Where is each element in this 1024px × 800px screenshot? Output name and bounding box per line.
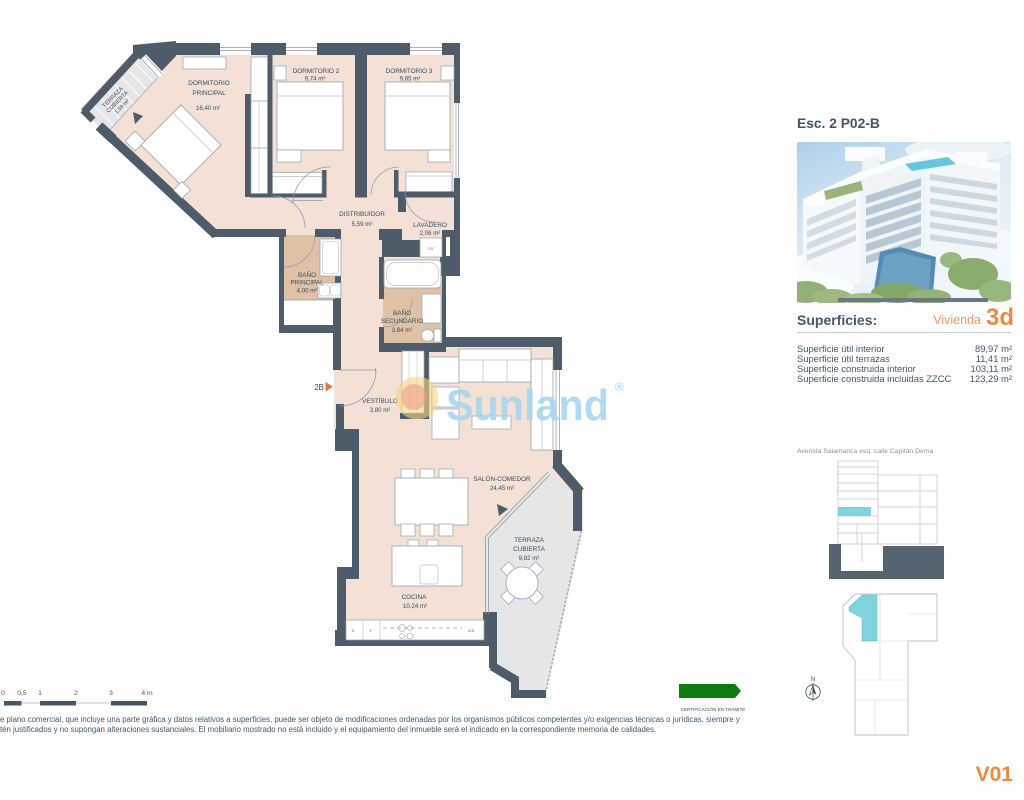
svg-text:LAVADERO: LAVADERO [413,222,447,229]
svg-text:2: 2 [74,690,78,697]
svg-text:9,85 m²: 9,85 m² [400,76,421,83]
svg-text:4,00 m²: 4,00 m² [297,288,318,295]
svg-text:0,5: 0,5 [17,690,27,697]
svg-text:CERTIFICACIÓN EN TRÁMITE: CERTIFICACIÓN EN TRÁMITE [681,706,746,712]
svg-text:9,74 m²: 9,74 m² [305,76,326,83]
svg-text:Superficies:: Superficies: [797,312,877,328]
svg-text:TERRAZA: TERRAZA [514,537,545,544]
svg-text:PRINCIPAL: PRINCIPAL [192,90,226,97]
svg-text:1: 1 [38,690,42,697]
svg-text:3,84 m²: 3,84 m² [392,327,413,334]
svg-text:E: E [352,628,355,633]
svg-text:2B: 2B [314,383,324,392]
svg-text:VESTÍBULO: VESTÍBULO [362,396,398,405]
svg-text:DISTRIBUIDOR: DISTRIBUIDOR [339,211,385,218]
svg-text:10,24 m²: 10,24 m² [403,603,427,610]
svg-text:Vivienda: Vivienda [933,313,981,327]
svg-text:Superficie construida incluida: Superficie construida incluidas ZZCC [797,373,951,384]
svg-text:®: ® [615,380,624,394]
svg-text:V01: V01 [976,763,1014,786]
svg-text:N: N [811,677,815,683]
svg-text:Esc. 2 P02-B: Esc. 2 P02-B [797,116,880,131]
svg-text:24,45 m²: 24,45 m² [490,485,514,492]
svg-text:2,06 m²: 2,06 m² [420,230,441,237]
svg-text:BAÑO: BAÑO [393,308,411,317]
svg-text:tén justificados y no supongan: tén justificados y no supongan alteracio… [0,725,656,734]
svg-text:5,59 m²: 5,59 m² [352,221,373,228]
svg-text:9,82 m²: 9,82 m² [519,555,540,562]
svg-text:LV: LV [428,246,433,251]
svg-text:COCINA: COCINA [402,594,428,601]
svg-text:DORMITORIO 3: DORMITORIO 3 [386,68,433,75]
svg-text:BAÑO: BAÑO [298,270,316,279]
svg-text:Sunland: Sunland [446,381,609,430]
svg-text:SALÓN-COMEDOR: SALÓN-COMEDOR [473,474,531,483]
svg-text:4 m: 4 m [141,690,153,697]
svg-text:SECUNDARIO: SECUNDARIO [381,318,424,325]
svg-text:A/B: A/B [468,629,475,633]
svg-text:3,80 m²: 3,80 m² [370,407,391,414]
svg-text:Avenida Salamanca esq. calle C: Avenida Salamanca esq. calle Capitán Dem… [797,448,933,455]
svg-text:16,40 m²: 16,40 m² [196,105,220,112]
svg-text:CUBIERTA: CUBIERTA [513,546,545,553]
svg-text:0: 0 [1,690,5,697]
svg-text:123,29 m²: 123,29 m² [970,373,1012,384]
svg-text:DORMITORIO 2: DORMITORIO 2 [293,68,340,75]
svg-text:3d: 3d [986,304,1014,331]
svg-text:e plano comercial, que incluye: e plano comercial, que incluye una parte… [0,715,740,724]
svg-text:DORMITORIO: DORMITORIO [188,80,229,87]
svg-text:3: 3 [109,690,113,697]
svg-text:PRINCIPAL: PRINCIPAL [290,280,324,287]
